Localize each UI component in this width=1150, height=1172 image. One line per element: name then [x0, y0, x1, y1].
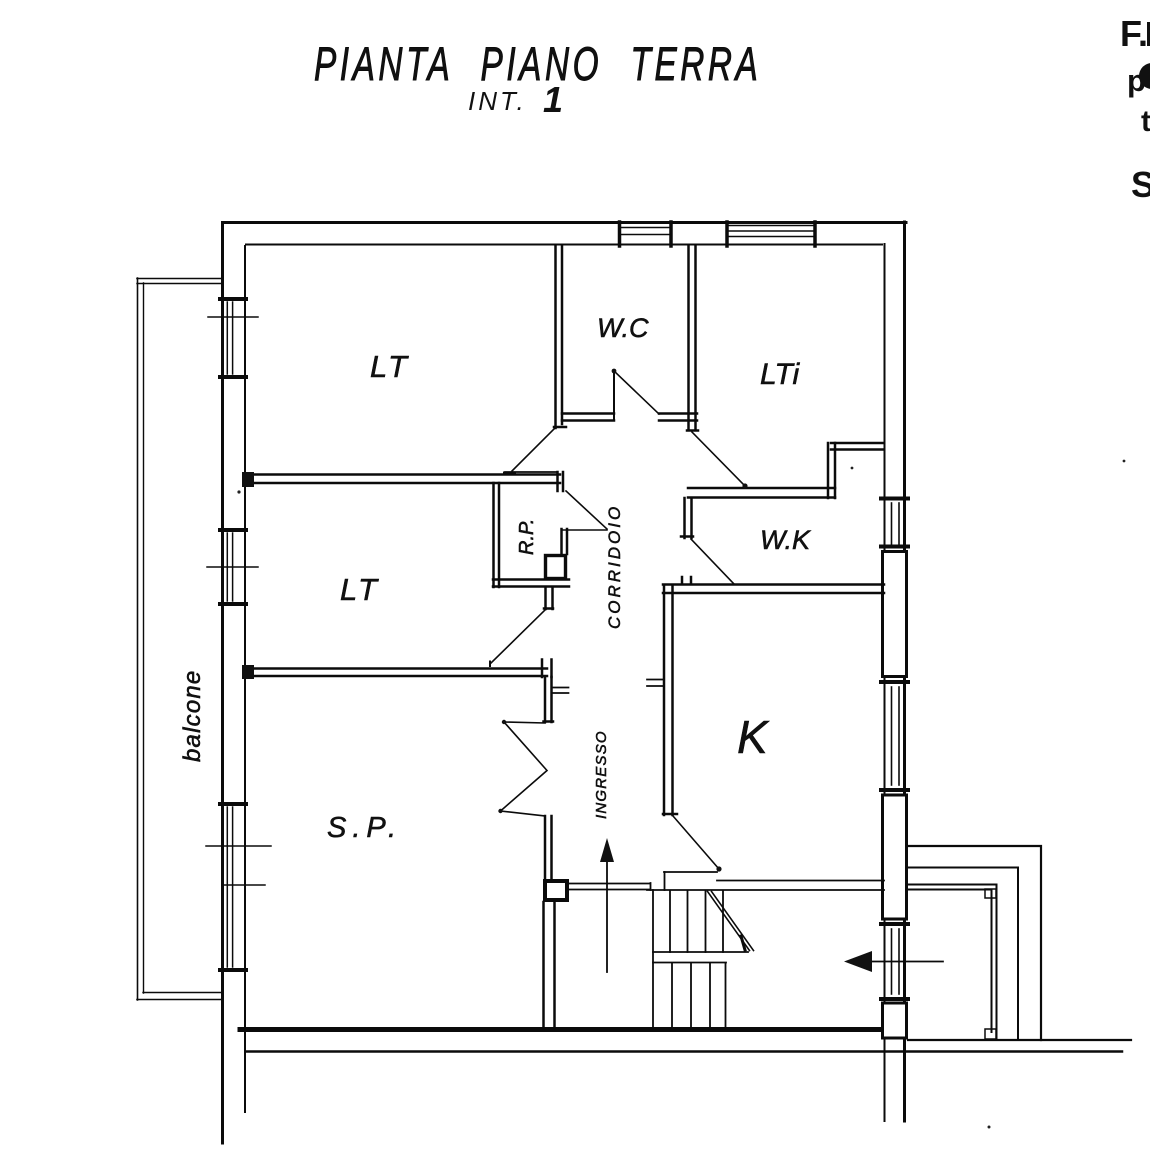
- svg-text:W.K: W.K: [760, 525, 811, 555]
- svg-text:K: K: [737, 711, 770, 763]
- svg-text:INT.: INT.: [468, 86, 527, 116]
- svg-text:F.: F.: [1120, 13, 1148, 54]
- svg-text:CORRIDOIO: CORRIDOIO: [605, 504, 624, 629]
- svg-text:1: 1: [543, 79, 563, 120]
- svg-text:LT: LT: [370, 349, 410, 384]
- svg-text:W.C: W.C: [597, 313, 649, 343]
- svg-text:LTi: LTi: [760, 358, 801, 391]
- svg-text:LT: LT: [340, 572, 380, 607]
- svg-text:balcone: balcone: [179, 670, 206, 762]
- svg-text:PIANTA PIANO TERRA: PIANTA PIANO TERRA: [314, 37, 761, 90]
- svg-text:INGRESSO: INGRESSO: [593, 730, 610, 819]
- svg-text:t: t: [1141, 105, 1150, 138]
- svg-text:R.P.: R.P.: [516, 519, 538, 555]
- svg-text:S.P.: S.P.: [327, 812, 402, 844]
- svg-text:S: S: [1131, 164, 1150, 205]
